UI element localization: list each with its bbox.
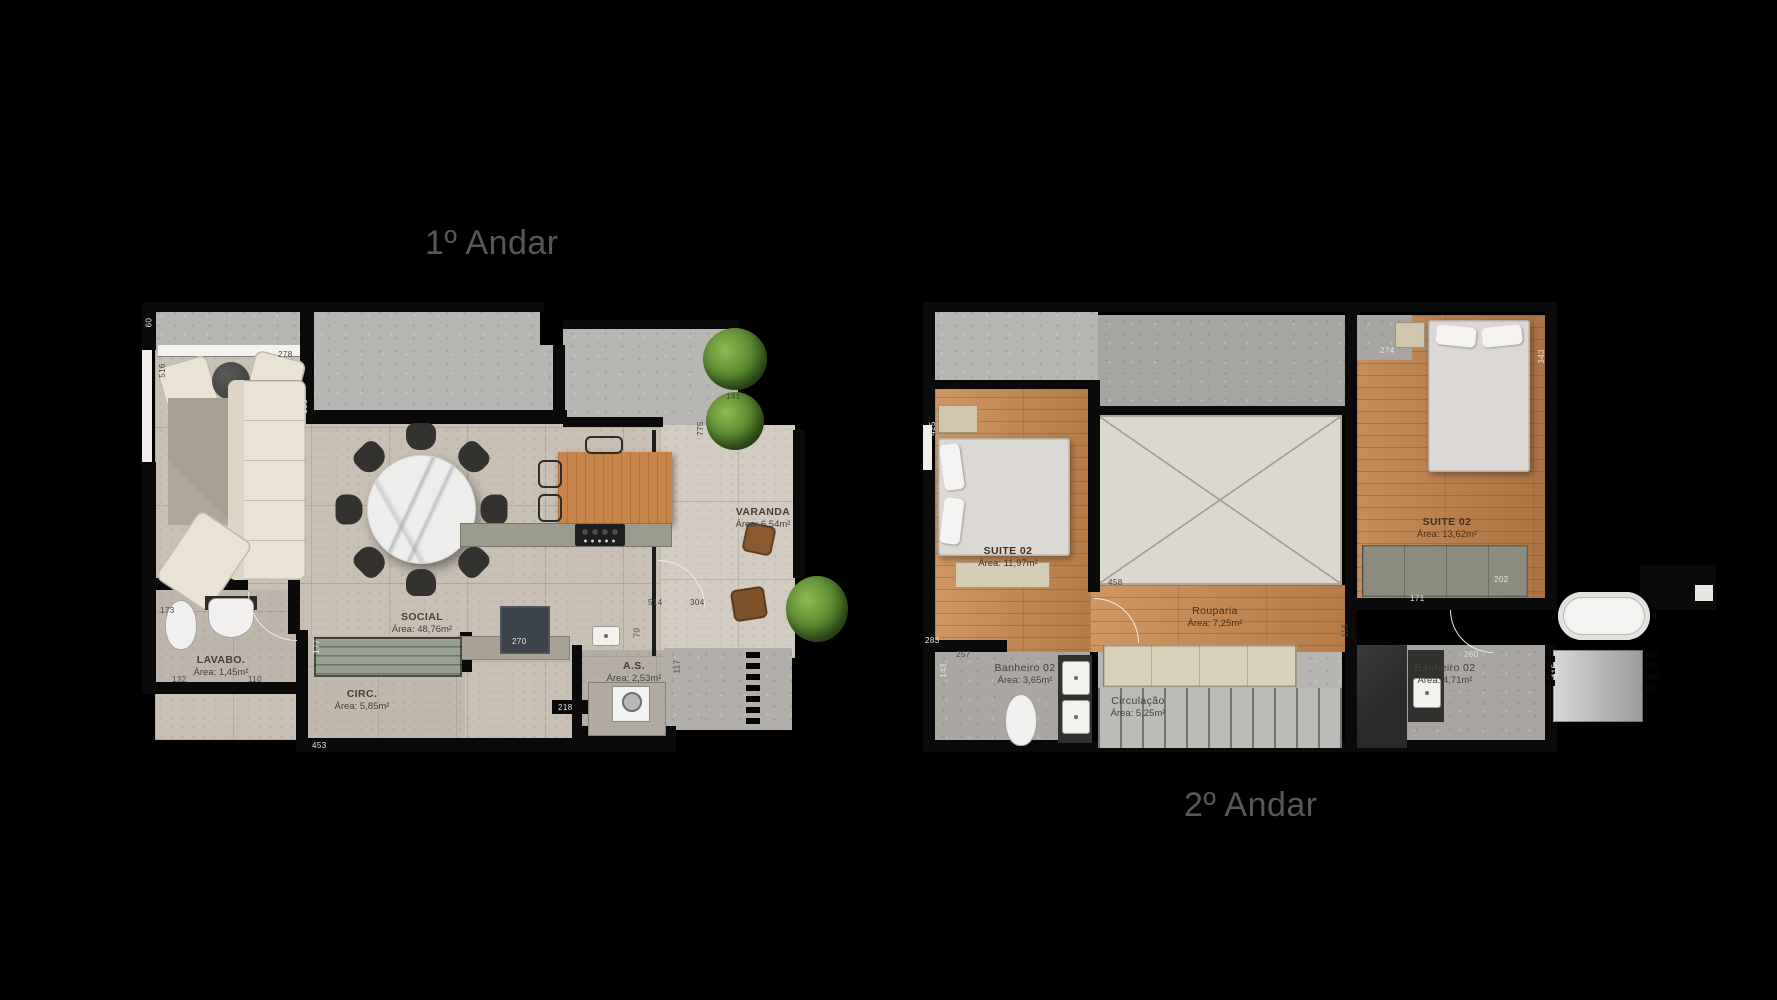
room-label-banheiro-left: Banheiro 02 Área: 3,65m² — [968, 662, 1082, 686]
pillow — [1435, 324, 1477, 348]
grate-mark — [746, 685, 760, 691]
wall — [296, 630, 308, 752]
dim-label: 202 — [1494, 575, 1509, 584]
wall — [142, 682, 302, 694]
room-area: Área: 6,54m² — [720, 519, 806, 530]
concrete-slab-top-left — [150, 306, 540, 348]
window-strip — [142, 350, 152, 462]
room-name: A.S. — [593, 660, 675, 673]
room-area: Área: 13,62m² — [1390, 529, 1504, 540]
dim-label: 141 — [726, 392, 741, 401]
room-name: Banheiro 02 — [968, 662, 1082, 675]
room-name: CIRC. — [310, 688, 414, 701]
wall — [1545, 302, 1557, 600]
shower — [1357, 645, 1407, 748]
wall — [923, 470, 935, 752]
dim-label: 283 — [925, 636, 940, 645]
grate-mark — [1545, 680, 1555, 686]
room-area: Área: 4,71m² — [1388, 675, 1502, 686]
room-area: Área: 7,25m² — [1160, 618, 1270, 629]
wall — [563, 320, 738, 329]
room-name: SUITE 02 — [1390, 516, 1504, 529]
room-label-rouparia: Rouparia Área: 7,25m² — [1160, 605, 1270, 629]
island-chair — [538, 460, 562, 488]
bathtub — [1558, 592, 1650, 640]
service-hatch — [1553, 650, 1643, 722]
room-area: Área: 5,85m² — [310, 701, 414, 712]
dim-label: 425 — [928, 421, 937, 436]
dim-label: 117 — [672, 660, 681, 674]
dim-label: 115 — [1550, 664, 1559, 678]
dim-label: 343 — [1537, 349, 1546, 364]
room-area: Área: 2,53m² — [593, 673, 675, 684]
toilet — [1005, 694, 1037, 746]
wall — [923, 302, 1557, 312]
stairs — [314, 637, 462, 677]
grate-mark — [1545, 656, 1555, 662]
grate-mark — [1645, 663, 1659, 669]
dining-chair — [406, 569, 436, 596]
room-area: Área: 3,65m² — [968, 675, 1082, 686]
wall — [303, 410, 567, 424]
grate-mark — [1645, 685, 1659, 691]
dim-label: 177 — [312, 639, 321, 654]
wall — [793, 430, 805, 578]
room-label-as: A.S. Área: 2,53m² — [593, 660, 675, 684]
dim-label: 516 — [158, 363, 167, 378]
dim-label: 173 — [160, 606, 175, 615]
island-chair — [585, 436, 623, 454]
dim-label: 278 — [278, 350, 293, 359]
dim-label: 70 — [632, 628, 641, 638]
dim-label: 458 — [1108, 578, 1123, 587]
dim-label: 514 — [648, 598, 663, 607]
room-area: Área: 5,25m² — [1082, 708, 1194, 719]
island-chair — [538, 494, 562, 522]
dining-chair — [336, 495, 363, 525]
dim-label: 257 — [956, 650, 971, 659]
room-label-suite-right: SUITE 02 Área: 13,62m² — [1390, 516, 1504, 540]
wall — [935, 640, 1007, 652]
floor-plan-canvas: 1º Andar — [0, 0, 1777, 1000]
dim-label: 133 — [300, 399, 309, 414]
wall — [923, 302, 935, 425]
dim-label: 110 — [248, 675, 262, 684]
room-name: SOCIAL — [366, 611, 478, 624]
wall — [142, 302, 544, 312]
room-name: LAVABO. — [170, 654, 272, 667]
floor1-title: 1º Andar — [425, 224, 559, 263]
wall — [553, 345, 565, 424]
wall — [563, 417, 663, 427]
wall — [1345, 598, 1557, 610]
dim-label: 453 — [312, 741, 327, 750]
grate-mark — [746, 652, 760, 658]
room-name: Banheiro 02 — [1388, 662, 1502, 675]
dim-label: 775 — [696, 421, 705, 436]
kitchen-island-table — [558, 452, 672, 524]
dim-label: 260 — [1464, 650, 1479, 659]
room-label-banheiro-right: Banheiro 02 Área: 4,71m² — [1388, 662, 1502, 686]
concrete-slab-left — [930, 306, 1098, 388]
cooktop-knobs — [582, 539, 618, 543]
grate-mark — [1645, 652, 1659, 658]
nightstand — [1395, 322, 1425, 348]
rouparia-closet — [1103, 645, 1297, 687]
dim-label: 143 — [939, 663, 948, 678]
pillow — [1481, 324, 1523, 348]
grate-mark — [746, 707, 760, 713]
nightstand — [938, 405, 978, 433]
wall-niche — [1695, 585, 1713, 601]
wall — [1345, 302, 1357, 602]
dim-label: 270 — [512, 637, 527, 646]
varanda-floor — [660, 425, 795, 658]
grate-mark — [1645, 674, 1659, 680]
room-name: Circulação — [1082, 695, 1194, 708]
dim-label: 304 — [690, 598, 705, 607]
pouf — [730, 586, 769, 623]
room-label-circ: CIRC. Área: 5,85m² — [310, 688, 414, 712]
grate-mark — [746, 718, 760, 724]
floor2-title: 2º Andar — [1184, 786, 1318, 825]
kitchen-counter — [460, 523, 672, 547]
service-ledge — [664, 648, 792, 730]
room-label-circulacao: Circulação Área: 5,25m² — [1082, 695, 1194, 719]
cooktop-burners — [580, 528, 620, 536]
dim-label: 171 — [1410, 594, 1425, 603]
concrete-slab-center — [1098, 315, 1345, 415]
washer-door — [622, 692, 642, 712]
dining-chair — [481, 495, 508, 525]
room-area: Área: 48,76m² — [366, 624, 478, 635]
dim-label: 116 — [1340, 624, 1349, 638]
wall — [142, 462, 156, 690]
room-label-social: SOCIAL Área: 48,76m² — [366, 611, 478, 635]
tree — [786, 576, 848, 642]
concrete-slab-center — [303, 345, 555, 413]
room-label-suite-left: SUITE 02 Área: 11,97m² — [950, 545, 1066, 569]
lavabo-sink — [208, 598, 254, 638]
dim-label: 132 — [172, 675, 187, 684]
dining-chair — [406, 423, 436, 450]
wall — [1098, 406, 1345, 415]
grate-mark — [746, 696, 760, 702]
wardrobe — [1362, 545, 1528, 597]
room-label-varanda: VARANDA Área: 6,54m² — [720, 506, 806, 530]
room-area: Área: 11,97m² — [950, 558, 1066, 569]
tree — [703, 328, 767, 390]
dim-label: 60 — [144, 318, 153, 328]
kitchen-sink — [592, 626, 620, 646]
void-panel — [1098, 415, 1342, 585]
grate-mark — [746, 674, 760, 680]
grate-mark — [746, 663, 760, 669]
dim-label: 274 — [1380, 346, 1395, 355]
wall — [930, 380, 1090, 389]
room-name: VARANDA — [720, 506, 806, 519]
room-name: Rouparia — [1160, 605, 1270, 618]
dim-label: 218 — [558, 703, 573, 712]
room-name: SUITE 02 — [950, 545, 1066, 558]
sink-island — [500, 606, 550, 654]
dining-table — [368, 456, 475, 563]
